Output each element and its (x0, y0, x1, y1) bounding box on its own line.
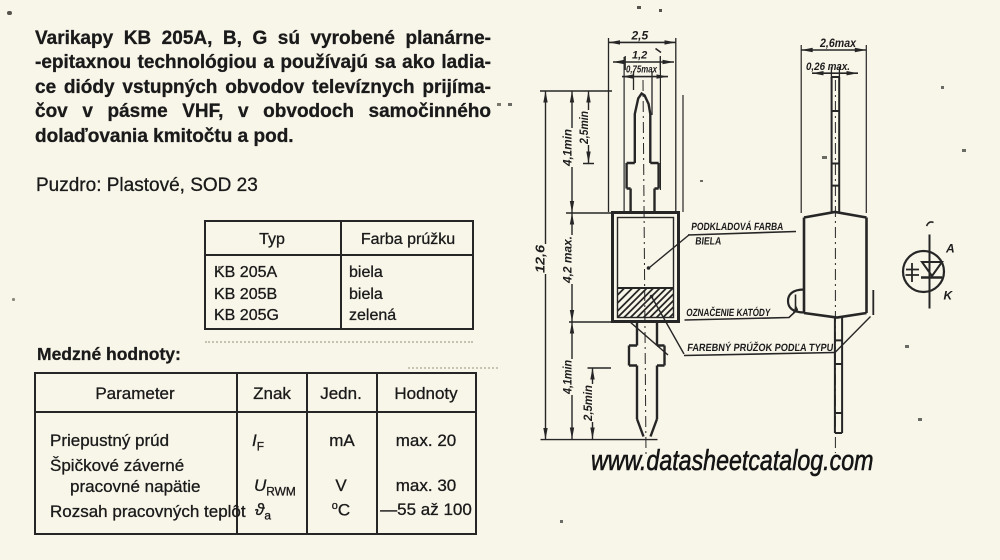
svg-text:BIELA: BIELA (695, 236, 723, 248)
svg-text:PODKLADOVÁ FARBA: PODKLADOVÁ FARBA (691, 220, 785, 233)
svg-text:4,1min: 4,1min (561, 360, 575, 395)
svg-text:OZNAČENIE KATÓDY: OZNAČENIE KATÓDY (686, 306, 771, 319)
svg-text:2,5min: 2,5min (581, 385, 595, 422)
svg-text:1,2: 1,2 (632, 50, 647, 62)
svg-text:12,6: 12,6 (533, 244, 548, 273)
svg-text:K: K (944, 289, 954, 303)
svg-text:2,5: 2,5 (631, 29, 649, 43)
svg-text:FAREBNÝ PRÚŽOK PODĽA TYPU: FAREBNÝ PRÚŽOK PODĽA TYPU (687, 341, 834, 354)
svg-text:4,2 max.: 4,2 max. (561, 236, 575, 284)
svg-text:A: A (945, 242, 955, 256)
svg-text:4,1min: 4,1min (561, 129, 575, 167)
svg-text:0,75max: 0,75max (626, 65, 657, 76)
svg-text:2,6max: 2,6max (819, 36, 857, 50)
svg-text:2,5min: 2,5min (577, 111, 591, 145)
svg-text:0,26 max.: 0,26 max. (806, 61, 850, 73)
